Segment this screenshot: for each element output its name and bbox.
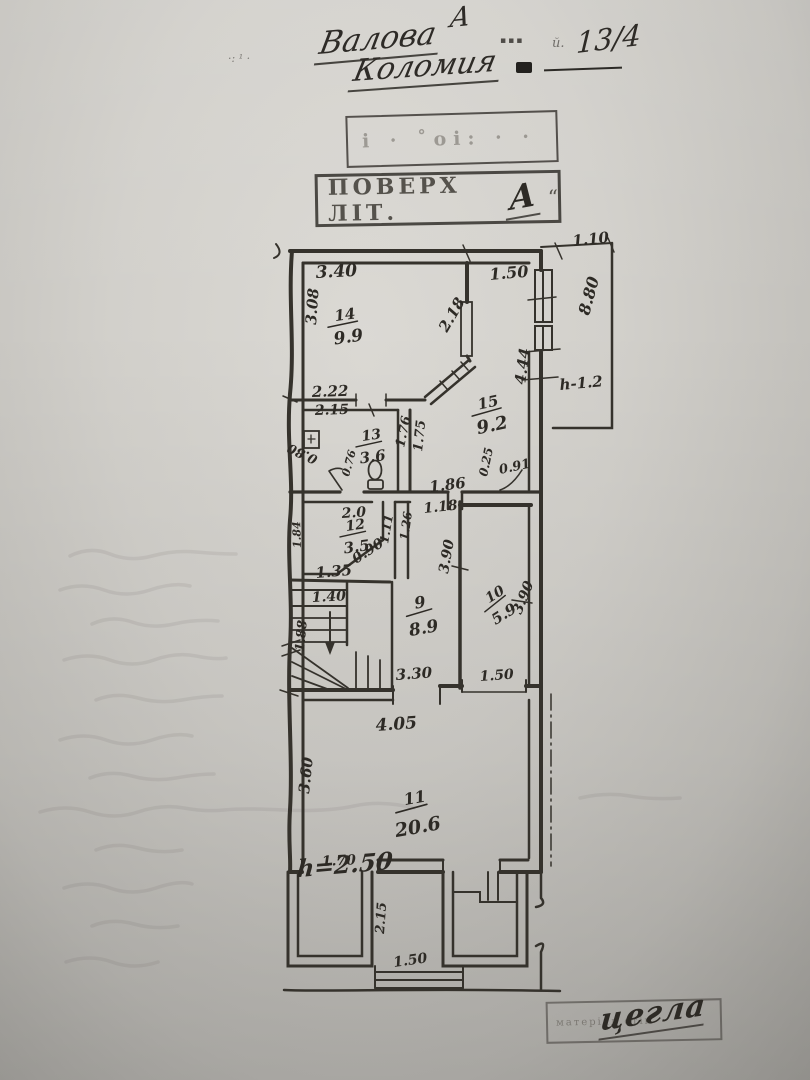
dim-room12-bottom: 1.35: [315, 561, 353, 582]
dim-terrace-right: 8.80: [574, 274, 603, 318]
dim-stairs-top: 1.40: [311, 588, 346, 606]
dim-room12-top: 2.0: [340, 504, 367, 522]
floor-plan: 14 9.9 15 9.2 13 3.6 12 3.5 9: [0, 0, 810, 1080]
dim-room9-bottom: 3.30: [395, 663, 433, 684]
dim-room15-bottom-a: 0.25: [476, 446, 496, 478]
room-13-label: 13 3.6: [354, 426, 388, 468]
dim-terrace-height: h-1.2: [559, 372, 604, 394]
vent-shaft-icon: [304, 431, 319, 448]
dim-corridor-wall: 1.75: [411, 419, 429, 452]
dim-room11-top: 4.05: [375, 713, 418, 736]
dim-room12-left: 1.84: [290, 521, 304, 548]
dim-room12-right-b: 1.26: [397, 510, 415, 542]
dim-room11-height: h=2.50: [296, 846, 394, 883]
room-9-label: 9 8.9: [402, 591, 440, 642]
svg-text:20.6: 20.6: [392, 812, 442, 842]
dim-partition-diag: 2.18: [434, 294, 469, 336]
dim-room10-bottom: 1.50: [479, 667, 514, 685]
dim-room13-top: 2.15: [314, 402, 350, 419]
dim-room15-top: 1.50: [489, 262, 529, 284]
room-15-label: 15 9.2: [468, 391, 510, 440]
dim-room13-door-b: 0.76: [339, 448, 359, 478]
dim-room13-above: 2.22: [311, 382, 349, 401]
dim-room14-left: 3.08: [302, 287, 323, 325]
scanned-floor-plan-page: А Валова Коломия 13/4 ·: ¹ · ▪▪▪ й. і · …: [0, 0, 810, 1080]
dim-room10-left: 3.90: [436, 538, 458, 575]
svg-text:9.2: 9.2: [475, 412, 510, 439]
dim-corridor-top: 1.18: [423, 497, 459, 517]
dim-porch-side: 2.15: [373, 902, 390, 936]
dim-steps-width: 1.50: [392, 950, 428, 971]
dim-top-right: 1.10: [572, 228, 611, 250]
svg-text:9: 9: [413, 592, 427, 613]
dim-room14-top: 3.40: [315, 261, 358, 283]
dim-room10-right: 3.90: [510, 579, 538, 617]
svg-text:3.6: 3.6: [358, 446, 387, 468]
svg-text:8.9: 8.9: [406, 616, 440, 641]
room-area: 9.9: [332, 326, 364, 350]
dim-stairs-left: 1.88: [293, 619, 311, 652]
dim-room11-left: 3.60: [295, 756, 317, 795]
svg-text:15: 15: [476, 392, 500, 414]
window-symbols: [535, 270, 552, 350]
ghost-writing: [40, 550, 680, 966]
room-11-label: 11 20.6: [387, 785, 442, 842]
room-14-label: 14 9.9: [325, 304, 364, 350]
door-leaf: [329, 468, 522, 490]
dim-room15-bottom-b: 0.91: [498, 457, 532, 478]
labels: 14 9.9 15 9.2 13 3.6 12 3.5 9: [285, 228, 610, 971]
porches-and-steps: [284, 872, 560, 991]
